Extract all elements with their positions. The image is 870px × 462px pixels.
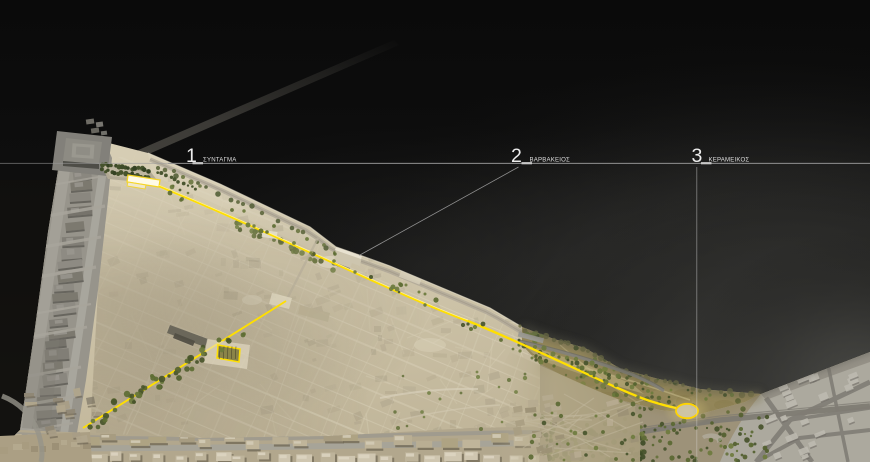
svg-text:3: 3	[692, 145, 703, 167]
svg-text:ΒΑΡΒΑΚΕΙΟΣ: ΒΑΡΒΑΚΕΙΟΣ	[530, 157, 571, 164]
svg-text:ΣΥΝΤΑΓΜΑ: ΣΥΝΤΑΓΜΑ	[203, 157, 237, 164]
svg-text:2: 2	[511, 145, 522, 167]
svg-text:1: 1	[186, 145, 197, 167]
svg-text:ΚΕΡΑΜΕΙΚΟΣ: ΚΕΡΑΜΕΙΚΟΣ	[709, 157, 750, 164]
